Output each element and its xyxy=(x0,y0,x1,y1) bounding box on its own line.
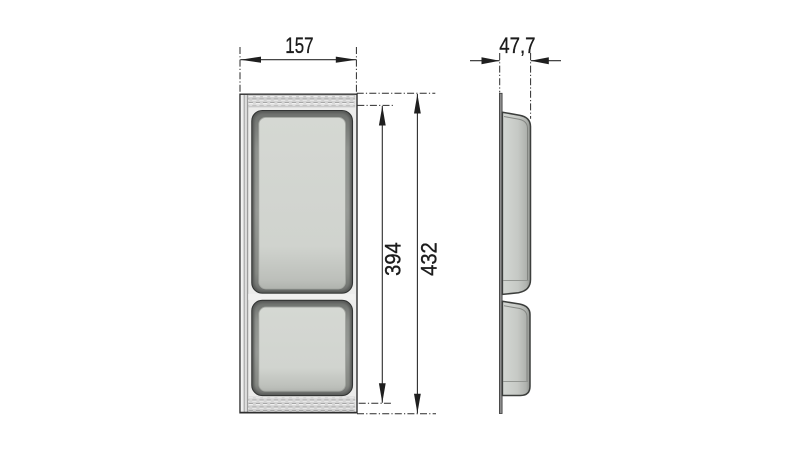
svg-text:432: 432 xyxy=(416,242,441,276)
svg-text:47,7: 47,7 xyxy=(499,33,535,58)
svg-text:394: 394 xyxy=(380,242,405,276)
svg-text:157: 157 xyxy=(285,33,313,58)
